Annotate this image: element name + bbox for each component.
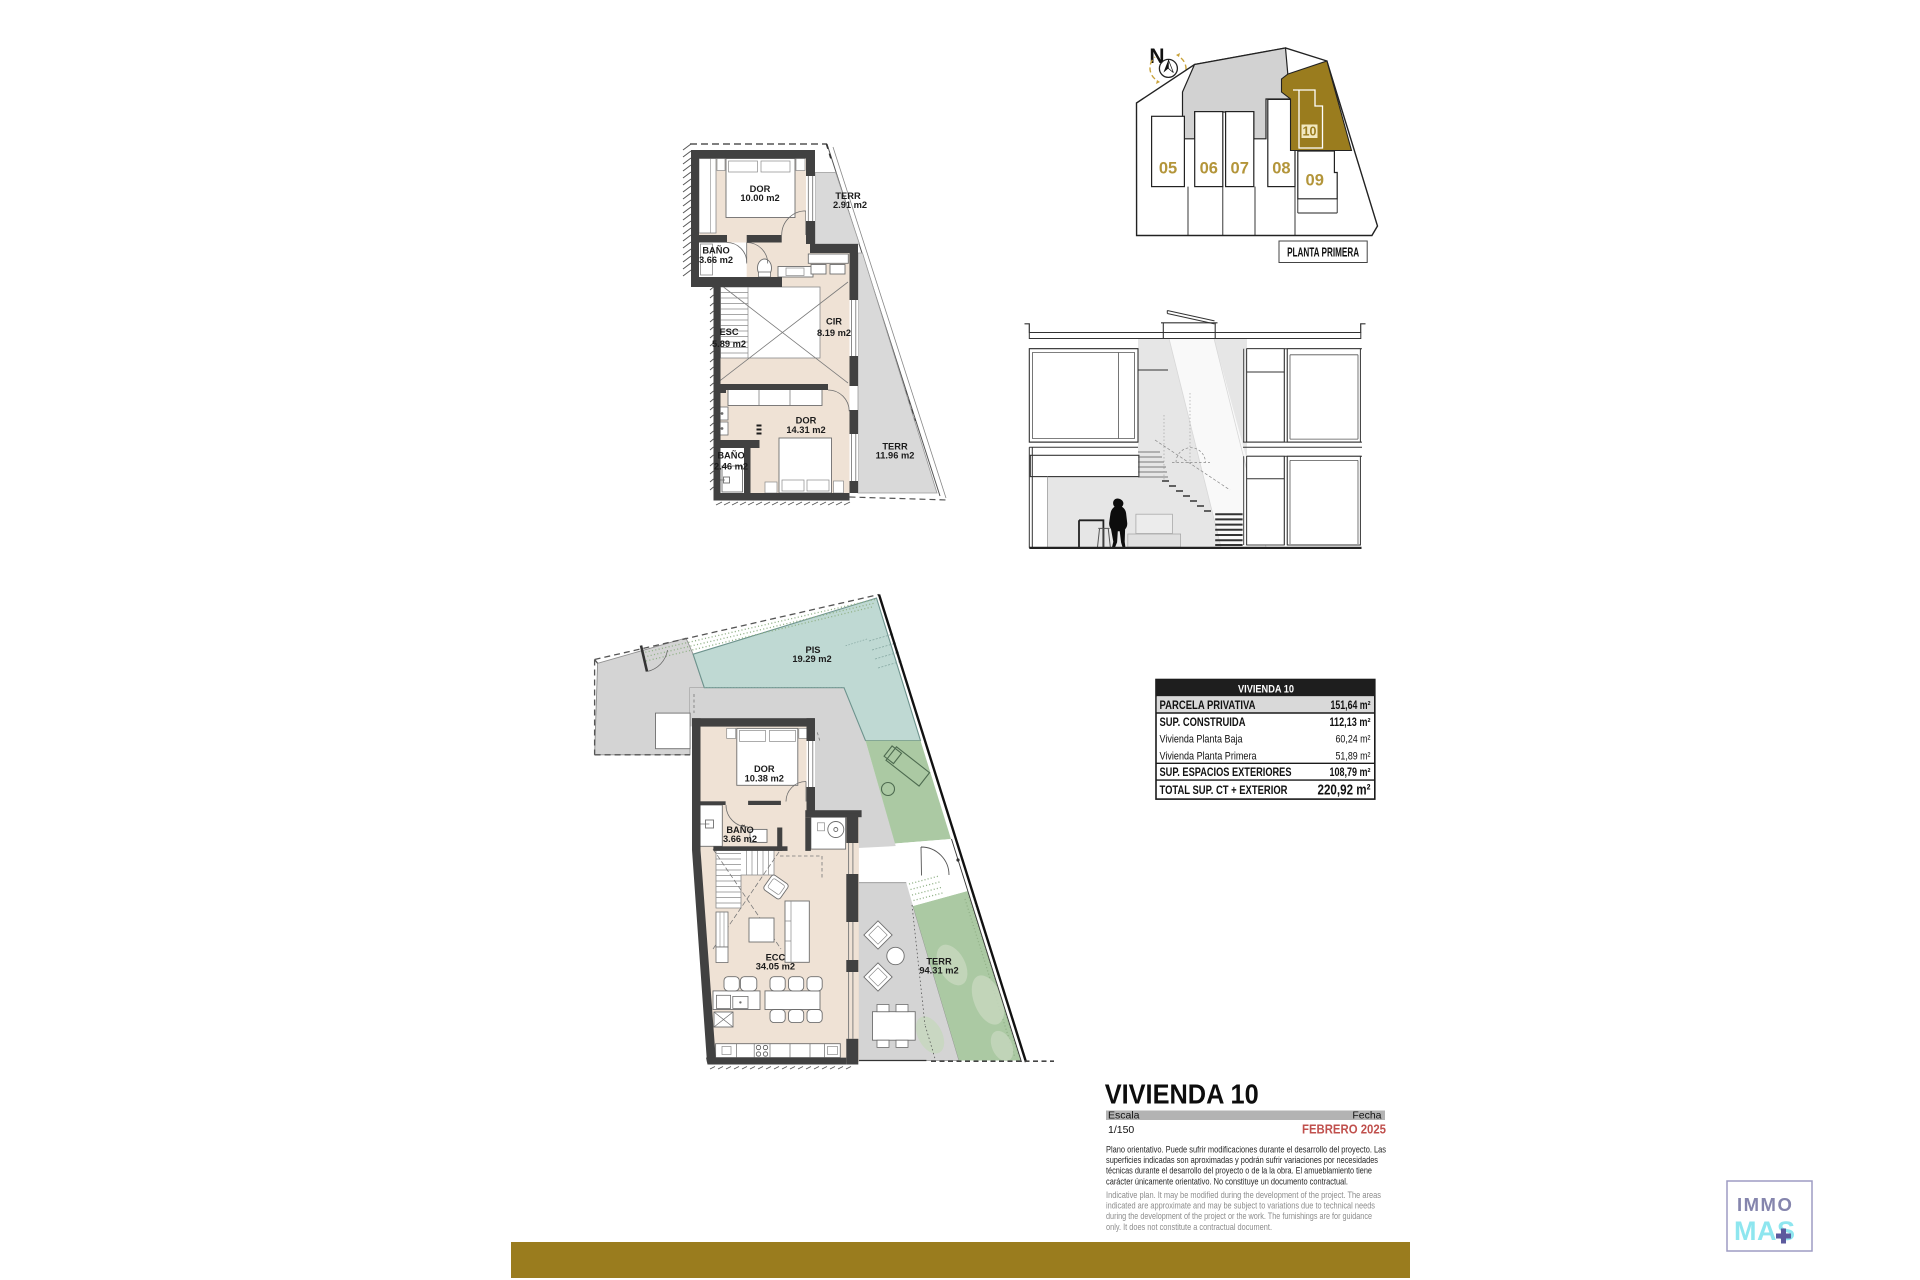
svg-text:Fecha: Fecha: [1352, 1109, 1381, 1121]
svg-text:VIVIENDA 10: VIVIENDA 10: [1238, 683, 1294, 695]
svg-text:08: 08: [1272, 160, 1290, 178]
svg-text:SUP. ESPACIOS EXTERIORES: SUP. ESPACIOS EXTERIORES: [1160, 767, 1292, 779]
svg-text:Vivienda Planta Primera: Vivienda Planta Primera: [1160, 750, 1258, 762]
svg-text:8.19 m2: 8.19 m2: [817, 328, 851, 338]
svg-text:10: 10: [1303, 125, 1317, 139]
svg-text:indicated are approximate and: indicated are approximate and may be sub…: [1106, 1201, 1375, 1212]
svg-text:CIR: CIR: [826, 317, 842, 327]
svg-text:10.00 m2: 10.00 m2: [740, 193, 779, 203]
svg-text:Vivienda Planta Baja: Vivienda Planta Baja: [1160, 734, 1244, 746]
svg-text:during the development of the: during the development of the project or…: [1106, 1211, 1372, 1222]
svg-text:07: 07: [1231, 160, 1249, 178]
svg-text:3.66 m2: 3.66 m2: [723, 834, 757, 844]
svg-text:19.29 m2: 19.29 m2: [792, 654, 831, 664]
svg-text:BAÑO: BAÑO: [717, 451, 744, 461]
svg-text:Plano orientativo. Puede sufri: Plano orientativo. Puede sufrir modifica…: [1106, 1144, 1386, 1155]
svg-text:2.91 m2: 2.91 m2: [833, 200, 867, 210]
svg-text:PLANTA PRIMERA: PLANTA PRIMERA: [1287, 246, 1359, 260]
svg-text:FEBRERO 2025: FEBRERO 2025: [1302, 1123, 1386, 1137]
svg-text:carácter únicamente orientativ: carácter únicamente orientativo. No cons…: [1106, 1176, 1348, 1187]
svg-text:DOR: DOR: [754, 764, 775, 774]
svg-text:108,79 m²: 108,79 m²: [1330, 767, 1371, 779]
svg-text:técnicas durante el desarrollo: técnicas durante el desarrollo del proye…: [1106, 1166, 1372, 1177]
svg-text:60,24 m²: 60,24 m²: [1336, 734, 1371, 746]
svg-text:06: 06: [1200, 160, 1218, 178]
svg-text:34.05 m2: 34.05 m2: [756, 962, 795, 972]
svg-text:ESC: ESC: [719, 327, 738, 337]
svg-text:09: 09: [1306, 172, 1324, 190]
svg-text:220,92 m²: 220,92 m²: [1318, 781, 1371, 798]
svg-text:superficies indicadas son apro: superficies indicadas son aproximadas y …: [1106, 1155, 1378, 1166]
svg-text:10.38 m2: 10.38 m2: [745, 774, 784, 784]
svg-text:IMMO: IMMO: [1737, 1194, 1793, 1215]
svg-text:11.96 m2: 11.96 m2: [876, 451, 915, 461]
svg-text:PARCELA PRIVATIVA: PARCELA PRIVATIVA: [1160, 700, 1256, 712]
svg-text:5.89 m2: 5.89 m2: [712, 339, 746, 349]
svg-text:Indicative plan. It may be mod: Indicative plan. It may be modified duri…: [1106, 1190, 1381, 1201]
svg-text:2.46 m2: 2.46 m2: [714, 462, 748, 472]
svg-text:05: 05: [1159, 160, 1177, 178]
svg-text:DOR: DOR: [796, 416, 817, 426]
svg-text:112,13 m²: 112,13 m²: [1330, 717, 1371, 729]
svg-text:only. It does not constitute a: only. It does not constitute a contractu…: [1106, 1222, 1272, 1233]
svg-text:1/150: 1/150: [1108, 1124, 1134, 1136]
svg-text:3.66 m2: 3.66 m2: [699, 255, 733, 265]
svg-text:BAÑO: BAÑO: [702, 246, 729, 256]
svg-text:MAS: MAS: [1734, 1216, 1796, 1246]
svg-text:VIVIENDA 10: VIVIENDA 10: [1105, 1078, 1259, 1109]
svg-text:SUP. CONSTRUIDA: SUP. CONSTRUIDA: [1160, 717, 1246, 729]
svg-text:TOTAL SUP. CT + EXTERIOR: TOTAL SUP. CT + EXTERIOR: [1160, 785, 1289, 797]
svg-text:14.31 m2: 14.31 m2: [786, 425, 825, 435]
svg-text:51,89 m²: 51,89 m²: [1336, 750, 1371, 762]
svg-text:94.31 m2: 94.31 m2: [919, 966, 958, 976]
svg-text:151,64 m²: 151,64 m²: [1331, 700, 1371, 712]
svg-text:Escala: Escala: [1108, 1109, 1140, 1121]
